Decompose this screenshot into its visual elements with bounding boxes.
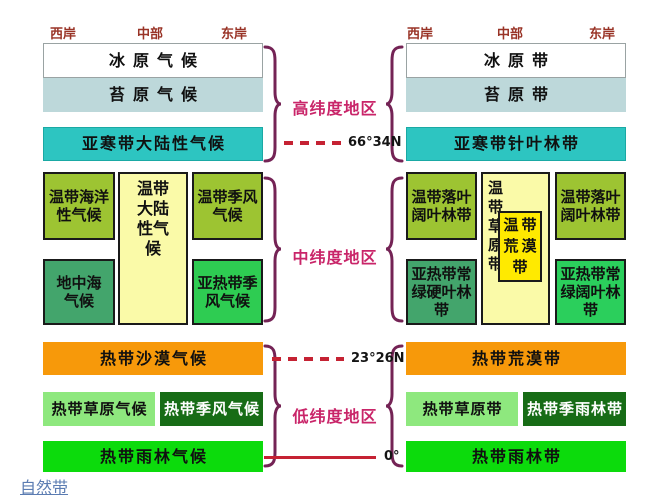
climate-naturalbelt-diagram: 西岸 中部 东岸 西岸 中部 东岸 冰原气候 苔原气候 亚寒带大陆性气候 温带海… — [0, 0, 667, 500]
equator-line — [264, 456, 376, 459]
coast-label-center-climate: 中部 — [137, 23, 163, 42]
climate-box-subarctic-label: 亚寒带大陆性气候 — [82, 134, 226, 153]
climate-box-mediterranean: 地中海 气候 — [43, 259, 115, 325]
climate-box-subarctic-continental: 亚寒带大陆性气候 — [43, 127, 263, 161]
climate-box-ice-label: 冰原气候 — [109, 51, 205, 70]
coast-label-center-belt: 中部 — [497, 23, 523, 42]
climate-box-temperate-monsoon-label: 温带季风 气候 — [197, 188, 257, 224]
mid-latitude-zone-label: 中纬度地区 — [283, 244, 387, 268]
belt-box-taiga: 亚寒带针叶林带 — [406, 127, 626, 161]
climate-box-tropical-grassland: 热带草原气候 — [43, 392, 155, 426]
belt-box-tropical-grassland: 热带草原带 — [406, 392, 518, 426]
belt-box-subtropical-evergreen-broadleaf: 亚热带常 绿阔叶林 带 — [555, 259, 626, 325]
natural-belt-link[interactable]: 自然带 — [20, 474, 68, 498]
tropic-cancer-dashed-line — [272, 357, 344, 361]
belt-box-tropical-seasonal-rainforest: 热带季雨林带 — [523, 392, 626, 426]
belt-box-temperate-deciduous-east: 温带落叶 阔叶林带 — [555, 172, 626, 240]
belt-box-tropical-rainforest-label: 热带雨林带 — [472, 447, 562, 466]
climate-box-tropical-rainforest-label: 热带雨林气候 — [100, 447, 208, 466]
coast-label-east-climate: 东岸 — [221, 23, 247, 42]
low-latitude-left-brace — [262, 344, 284, 468]
belt-box-ice: 冰原带 — [406, 43, 626, 78]
belt-box-temperate-desert-label: 温带 荒漠 带 — [503, 215, 539, 278]
climate-box-tropical-desert: 热带沙漠气候 — [43, 342, 263, 375]
climate-box-tundra-label: 苔原气候 — [109, 85, 205, 104]
belt-box-temperate-steppe: 温 带 草 原 带 温带 荒漠 带 — [481, 172, 550, 325]
coast-label-west-climate: 西岸 — [50, 23, 76, 42]
high-latitude-zone-label: 高纬度地区 — [283, 95, 387, 119]
belt-box-temperate-deciduous-west: 温带落叶 阔叶林带 — [406, 172, 477, 240]
climate-box-temperate-oceanic-label: 温带海洋 性气候 — [49, 188, 109, 224]
climate-box-tropical-desert-label: 热带沙漠气候 — [100, 349, 208, 368]
belt-box-tropical-grassland-label: 热带草原带 — [422, 400, 502, 418]
belt-box-tundra-label: 苔原带 — [484, 85, 556, 104]
climate-box-subtropical-monsoon: 亚热带季 风气候 — [192, 259, 263, 325]
climate-box-temperate-continental-label: 温带 大陆 性气 候 — [137, 179, 169, 259]
belt-box-ice-label: 冰原带 — [484, 51, 556, 70]
equator-label: 0° — [384, 449, 400, 464]
tropic-cancer-label: 23°26N — [351, 351, 405, 366]
belt-box-tropical-rainforest: 热带雨林带 — [406, 441, 626, 472]
belt-box-taiga-label: 亚寒带针叶林带 — [454, 134, 580, 153]
climate-box-subtropical-monsoon-label: 亚热带季 风气候 — [197, 274, 257, 310]
climate-box-tundra: 苔原气候 — [43, 78, 263, 112]
belt-box-temperate-desert: 温带 荒漠 带 — [498, 211, 542, 282]
climate-box-tropical-grassland-label: 热带草原气候 — [51, 400, 147, 418]
belt-box-tundra: 苔原带 — [406, 78, 626, 112]
climate-box-temperate-monsoon: 温带季风 气候 — [192, 172, 263, 240]
climate-box-ice: 冰原气候 — [43, 43, 263, 78]
belt-box-temperate-deciduous-west-label: 温带落叶 阔叶林带 — [411, 188, 471, 224]
climate-box-tropical-monsoon-label: 热带季风气候 — [164, 400, 260, 418]
climate-box-temperate-continental: 温带 大陆 性气 候 — [118, 172, 188, 325]
belt-box-subtropical-evergreen-broadleaf-label: 亚热带常 绿阔叶林 带 — [560, 265, 620, 319]
mid-latitude-left-brace — [262, 176, 284, 323]
climate-box-tropical-monsoon: 热带季风气候 — [160, 392, 263, 426]
low-latitude-zone-label: 低纬度地区 — [283, 403, 387, 427]
climate-box-temperate-oceanic: 温带海洋 性气候 — [43, 172, 115, 240]
climate-box-tropical-rainforest: 热带雨林气候 — [43, 441, 263, 472]
coast-label-west-belt: 西岸 — [407, 23, 433, 42]
belt-box-tropical-desert: 热带荒漠带 — [406, 342, 626, 375]
climate-box-mediterranean-label: 地中海 气候 — [56, 274, 101, 310]
belt-box-tropical-desert-label: 热带荒漠带 — [472, 349, 562, 368]
coast-label-east-belt: 东岸 — [589, 23, 615, 42]
belt-box-subtropical-sclerophyll-label: 亚热带常 绿硬叶林 带 — [411, 265, 471, 319]
belt-box-tropical-seasonal-rainforest-label: 热带季雨林带 — [527, 400, 623, 418]
arctic-circle-dashed-line — [284, 141, 348, 145]
belt-box-temperate-deciduous-east-label: 温带落叶 阔叶林带 — [560, 188, 620, 224]
arctic-circle-label: 66°34N — [348, 135, 402, 150]
high-latitude-left-brace — [262, 45, 284, 163]
mid-latitude-right-brace — [385, 176, 407, 323]
belt-box-subtropical-sclerophyll: 亚热带常 绿硬叶林 带 — [406, 259, 477, 325]
